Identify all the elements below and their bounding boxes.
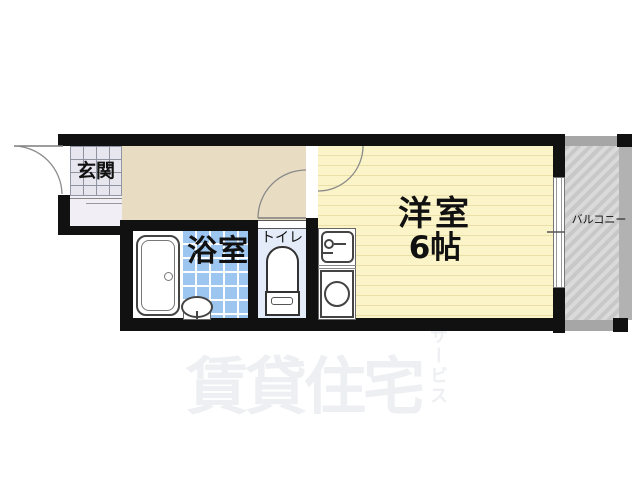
wall-entry-bottom — [58, 226, 128, 235]
step-edge-line — [70, 198, 122, 199]
stove-burner — [324, 281, 350, 307]
wall-right-upper — [553, 135, 565, 177]
toilet-door-opening — [258, 220, 306, 229]
watermark-main-text: 賃貸住宅 — [186, 336, 422, 426]
wall-toilet-mainroom — [306, 218, 318, 318]
window-frame-line-2 — [561, 178, 562, 287]
window-frame-line-1 — [556, 178, 557, 287]
wall-balcony-corner-bottomright — [613, 318, 628, 332]
kitchen-faucet — [324, 239, 334, 249]
balcony-floor — [565, 146, 619, 320]
wall-balcony-corner-topright — [617, 134, 632, 147]
wall-bath-toilet — [248, 220, 258, 318]
kitchen-counter-line-2 — [318, 268, 356, 269]
kitchen-counter-line-1 — [318, 265, 356, 266]
mainroom-window — [553, 177, 565, 288]
wall-top — [58, 134, 565, 146]
main-room-label: 洋室 — [360, 197, 510, 233]
balcony-bottom-band — [565, 320, 613, 331]
toilet-bowl — [266, 246, 299, 294]
kitchen-faucet-handle — [323, 252, 333, 254]
step-edge-line-2 — [86, 203, 122, 204]
main-room-size-label: 6帖 — [360, 232, 510, 265]
washbasin-faucet — [196, 311, 198, 319]
bathroom-label: 浴室 — [185, 236, 251, 268]
toilet-label: トイレ — [259, 231, 305, 246]
toilet-tank-lid — [271, 297, 293, 305]
wall-left-lower — [120, 226, 133, 331]
bathtub-drain — [164, 272, 173, 281]
floor-plan-canvas: 賃貸住宅 サービス — [0, 0, 640, 480]
mainroom-door-opening — [306, 147, 318, 218]
entrance-door-arc — [14, 146, 62, 194]
wall-hallway-bathroom — [120, 220, 258, 231]
balcony-outer-rail — [619, 146, 632, 320]
wall-right-lower — [553, 288, 565, 333]
watermark-sub-text: サービス — [424, 326, 450, 412]
balcony-label: バルコニー — [566, 214, 632, 226]
hallway-floor — [122, 146, 306, 220]
kitchen-faucet-lever — [334, 243, 346, 245]
balcony-top-band — [565, 136, 617, 146]
entrance-step-area — [70, 196, 122, 226]
entrance-label: 玄関 — [72, 162, 120, 182]
